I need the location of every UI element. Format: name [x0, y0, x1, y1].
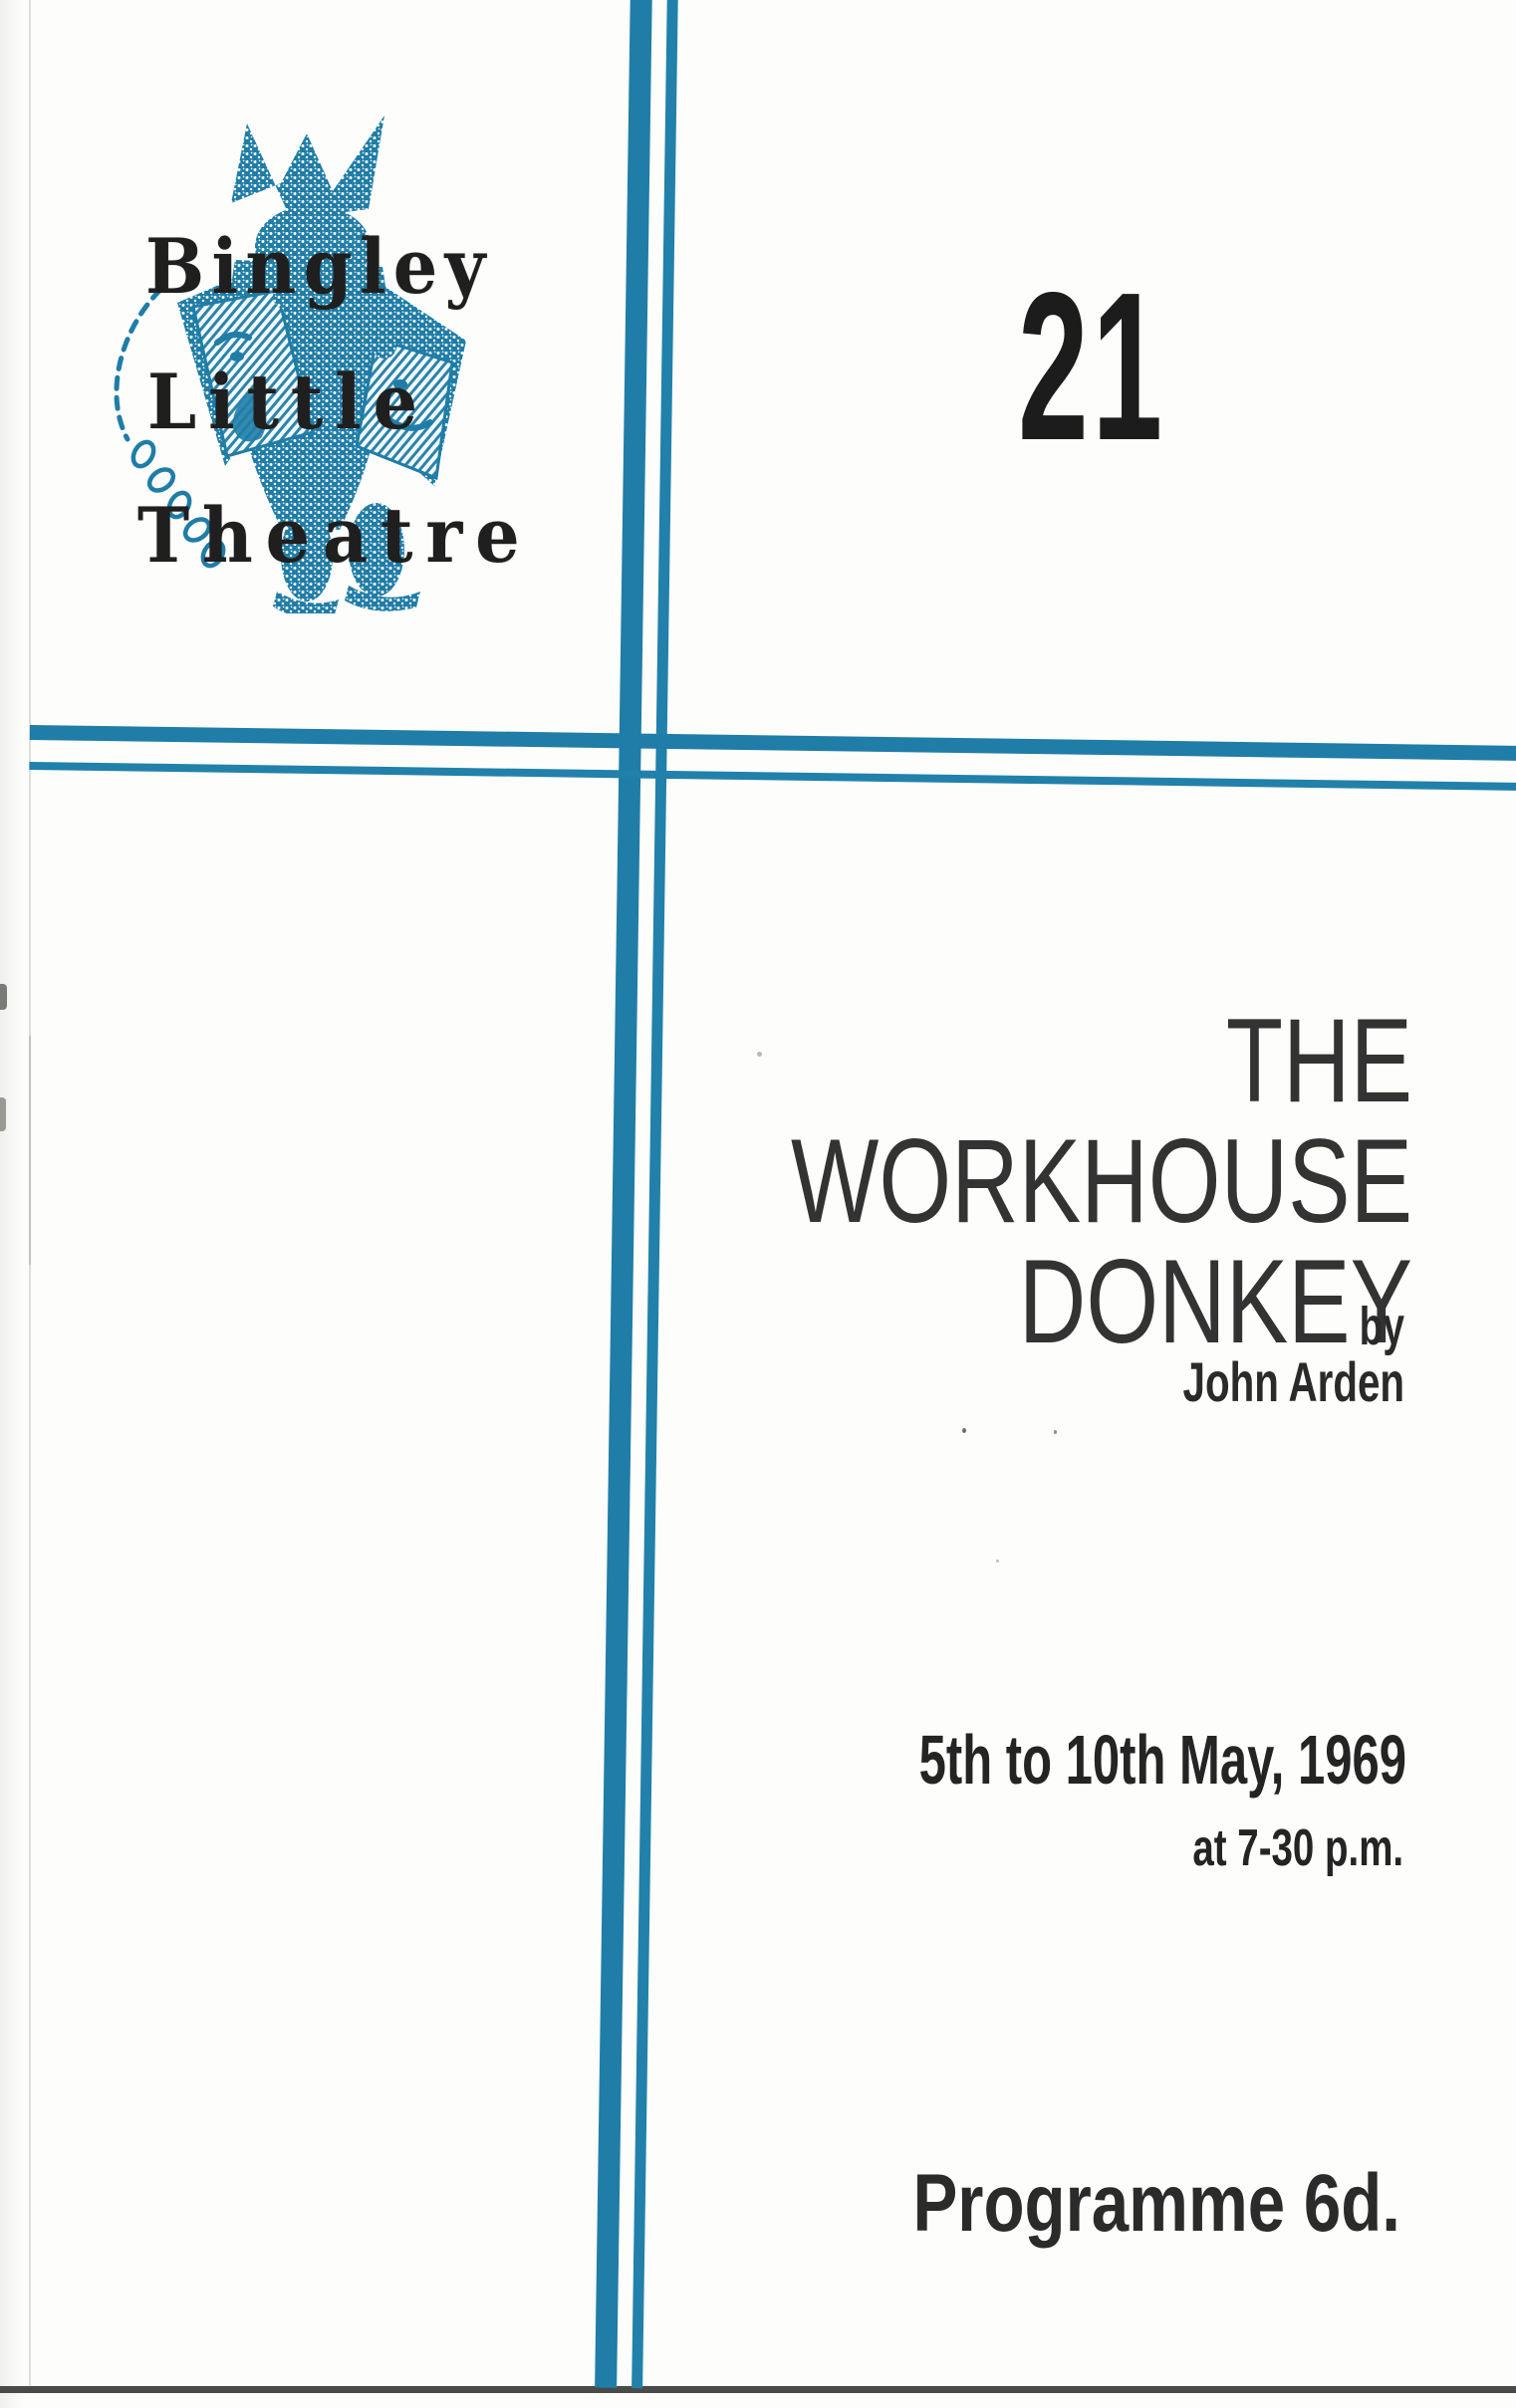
vertical-double-rule [577, 0, 692, 2388]
logo-word-bingley: Bingley [145, 229, 493, 305]
author-name: John Arden [1182, 1354, 1404, 1410]
performance-dates: 5th to 10th May, 1969 [919, 1725, 1406, 1795]
performance-time: at 7-30 p.m. [1192, 1822, 1403, 1874]
left-edge-mark [0, 984, 7, 1010]
paper-speck [962, 1428, 966, 1433]
horizontal-double-rule [29, 725, 1516, 796]
logo-word-theatre: Theatre [137, 498, 532, 574]
play-title: THE WORKHOUSE DONKEY [791, 1001, 1412, 1362]
programme-price: Programme 6d. [912, 2163, 1400, 2245]
play-title-line-1: THE [791, 1001, 1412, 1121]
paper-speck [757, 1052, 762, 1057]
paper-speck [1054, 1430, 1057, 1434]
bottom-scan-edge [0, 2386, 1516, 2393]
paper-speck [996, 1560, 999, 1563]
programme-cover: Bingley Little Theatre 21 THE WORKHOUSE … [0, 0, 1516, 2408]
horizontal-rule-thick [30, 725, 1516, 761]
left-edge-mark [0, 1097, 6, 1131]
play-title-line-2: WORKHOUSE [791, 1121, 1412, 1242]
byline-prefix: by [1360, 1300, 1404, 1353]
horizontal-rule-thin [29, 762, 1516, 791]
left-edge-shadow [0, 0, 24, 2408]
left-fold-line-dark [29, 1036, 31, 1265]
issue-number: 21 [1018, 261, 1166, 472]
logo-word-little: Little [147, 364, 429, 440]
play-title-line-3: DONKEY [791, 1242, 1412, 1362]
